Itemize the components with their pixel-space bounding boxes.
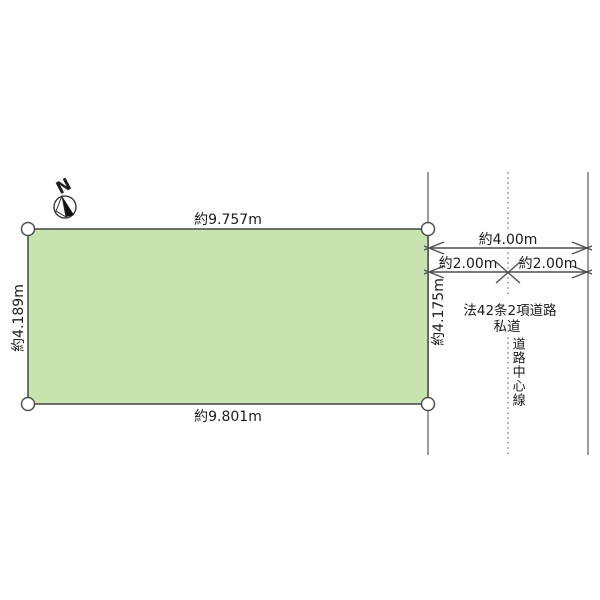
land-survey-diagram: N 約4.00m 約2.00m 約2.00m 約9.757m 約9.801m 約… — [0, 0, 600, 600]
north-compass-icon: N — [53, 175, 76, 218]
plot-canvas: N 約4.00m 約2.00m 約2.00m 約9.757m 約9.801m 約… — [0, 0, 600, 600]
parcel-bottom-dimension-label: 約9.801m — [194, 409, 262, 425]
parcel-right-dimension-label: 約4.175m — [431, 278, 447, 346]
road-ownership-label: 私道 — [494, 319, 521, 335]
north-label: N — [53, 175, 75, 199]
parcel-top-dimension-label: 約9.757m — [194, 212, 262, 228]
road-right-half-label: 約2.00m — [519, 256, 578, 272]
road-left-half-label: 約2.00m — [439, 256, 498, 272]
dimension-road-total: 約4.00m — [424, 232, 592, 254]
boundary-point-marker-bottom-right — [422, 398, 435, 411]
road-total-width-label: 約4.00m — [479, 232, 538, 248]
road-classification-label: 法42条2項道路 — [463, 302, 557, 319]
boundary-point-marker-top-left — [22, 223, 35, 236]
parcel-left-dimension-label: 約4.189m — [11, 284, 27, 352]
road-centerline-caption: 道路中心線 — [510, 337, 524, 407]
boundary-point-marker-top-right — [422, 223, 435, 236]
boundary-point-marker-bottom-left — [22, 398, 35, 411]
land-parcel — [28, 229, 428, 404]
